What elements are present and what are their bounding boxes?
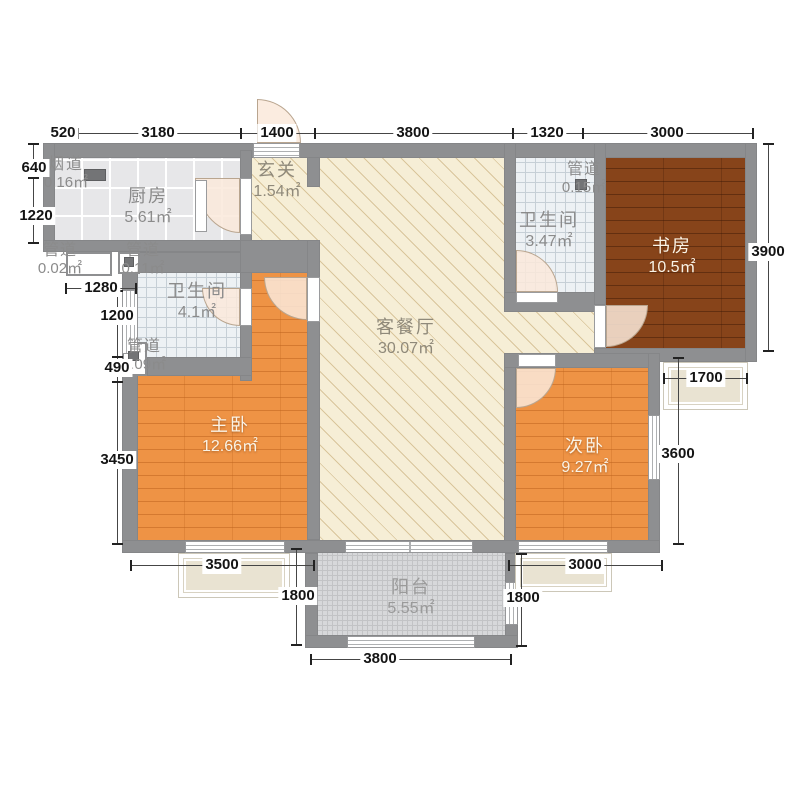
dim-line-left-inner <box>117 290 118 545</box>
second-bedroom-door-leaf <box>518 354 556 367</box>
tick <box>661 560 663 571</box>
kitchen-name: 厨房 <box>124 186 171 208</box>
room-label-kitchen: 厨房 5.61㎡ <box>124 186 171 228</box>
room-label-second: 次卧 9.27㎡ <box>561 436 608 478</box>
dim-bottom-1800-right: 1800 <box>503 589 542 607</box>
duct-002-area: 0.02㎡ <box>38 260 82 279</box>
dim-top-3000: 3000 <box>647 124 686 142</box>
tick <box>65 283 67 294</box>
study-area: 10.5㎡ <box>648 258 695 278</box>
kitchen-door-leaf <box>195 180 207 232</box>
room-label-guest-bath: 卫生间 3.47㎡ <box>519 210 579 252</box>
wall-top <box>43 143 757 158</box>
master-door-leaf <box>307 277 320 322</box>
wall-guest-bath-left <box>504 143 516 312</box>
sliding-door-divider <box>409 542 411 552</box>
dim-bottom-3800: 3800 <box>360 650 399 668</box>
second-name: 次卧 <box>561 436 608 458</box>
dim-inner-1200: 1200 <box>97 307 136 325</box>
room-label-duct-002: 管道 0.02㎡ <box>38 241 82 279</box>
duct-015-name: 管道 <box>562 160 606 179</box>
tick <box>112 381 123 383</box>
tick <box>313 560 315 571</box>
room-label-duct-011: 管道 0.11㎡ <box>121 241 164 279</box>
tick <box>508 560 510 571</box>
wall-hall-pillar <box>307 157 320 187</box>
tick <box>240 128 242 139</box>
floor-plan: 烟道 0.16㎡ 厨房 5.61㎡ 管道 0.02㎡ 管道 0.11㎡ 玄关 1… <box>0 0 800 800</box>
study-door-leaf <box>594 305 606 348</box>
tick <box>752 128 754 139</box>
dim-inner-490: 490 <box>101 359 132 377</box>
dim-bottom-3500: 3500 <box>202 556 241 574</box>
tick <box>673 357 684 359</box>
kitchen-door-opening <box>240 178 252 235</box>
room-label-living: 客餐厅 30.07㎡ <box>376 317 436 359</box>
dim-left-640: 640 <box>18 159 49 177</box>
dim-top-3180: 3180 <box>138 124 177 142</box>
room-label-flue: 烟道 0.16㎡ <box>44 155 88 193</box>
tick <box>28 242 39 244</box>
room-label-balcony: 阳台 5.55㎡ <box>387 577 434 619</box>
dim-line-3800 <box>310 659 512 660</box>
kitchen-area: 5.61㎡ <box>124 208 171 228</box>
tick <box>291 644 302 646</box>
master-area: 12.66㎡ <box>202 437 258 457</box>
tick <box>28 143 39 145</box>
dim-top-3800: 3800 <box>393 124 432 142</box>
room-label-main-bath: 卫生间 4.1㎡ <box>167 281 227 323</box>
room-label-duct-015: 管道 0.15㎡ <box>562 160 606 198</box>
dim-bottom-3000: 3000 <box>565 556 604 574</box>
study-name: 书房 <box>648 236 695 258</box>
second-bay-opening <box>518 541 608 553</box>
entry-door-sill <box>253 143 300 158</box>
hallway-area: 1.54㎡ <box>253 182 300 202</box>
tick <box>516 645 527 647</box>
dim-bottom-1800-left: 1800 <box>278 587 317 605</box>
tick <box>135 283 137 294</box>
guest-bath-name: 卫生间 <box>519 210 579 232</box>
balcony-name: 阳台 <box>387 577 434 599</box>
tick <box>582 128 584 139</box>
tick <box>28 177 39 179</box>
tick <box>112 356 123 358</box>
tick <box>130 560 132 571</box>
dim-right-3600: 3600 <box>658 445 697 463</box>
room-label-master: 主卧 12.66㎡ <box>202 415 258 457</box>
duct-009-name: 管道 <box>122 337 166 356</box>
duct-015-area: 0.15㎡ <box>562 179 606 198</box>
second-area: 9.27㎡ <box>561 458 608 478</box>
tick <box>746 373 748 384</box>
tick <box>291 548 302 550</box>
master-name: 主卧 <box>202 415 258 437</box>
dim-inner-1280: 1280 <box>81 279 120 297</box>
dim-right-3900: 3900 <box>748 243 787 261</box>
balcony-area: 5.55㎡ <box>387 599 434 619</box>
room-label-study: 书房 10.5㎡ <box>648 236 695 278</box>
balcony-bottom-window <box>347 636 475 648</box>
guest-bath-area: 3.47㎡ <box>519 232 579 252</box>
dim-right-1700: 1700 <box>686 369 725 387</box>
room-label-hallway: 玄关 1.54㎡ <box>253 160 300 202</box>
tick <box>510 654 512 665</box>
main-bath-door-leaf <box>240 288 252 326</box>
flue-name: 烟道 <box>44 155 88 174</box>
main-bath-name: 卫生间 <box>167 281 227 303</box>
dim-top-1320: 1320 <box>527 124 566 142</box>
living-area: 30.07㎡ <box>376 339 436 359</box>
main-bath-area: 4.1㎡ <box>167 303 227 323</box>
tick <box>310 654 312 665</box>
tick <box>112 543 123 545</box>
balcony-sliding-door <box>345 541 473 553</box>
tick <box>516 553 527 555</box>
tick <box>763 143 774 145</box>
living-name: 客餐厅 <box>376 317 436 339</box>
guest-bath-door-leaf <box>516 292 558 303</box>
master-bay-opening <box>185 541 285 553</box>
dim-line-left <box>33 143 34 242</box>
dim-inner-3450: 3450 <box>97 451 136 469</box>
dim-left-1220: 1220 <box>16 207 55 225</box>
duct-002-name: 管道 <box>38 241 82 260</box>
tick <box>763 350 774 352</box>
tick <box>673 543 684 545</box>
tick <box>512 128 514 139</box>
hallway-name: 玄关 <box>253 160 300 182</box>
duct-011-name: 管道 <box>121 241 164 260</box>
wall-second-left <box>504 353 516 553</box>
flue-area: 0.16㎡ <box>44 174 88 193</box>
dim-top-1400: 1400 <box>257 124 296 142</box>
duct-011-area: 0.11㎡ <box>121 260 164 279</box>
tick <box>663 373 665 384</box>
tick <box>314 128 316 139</box>
dim-top-520: 520 <box>47 124 78 142</box>
